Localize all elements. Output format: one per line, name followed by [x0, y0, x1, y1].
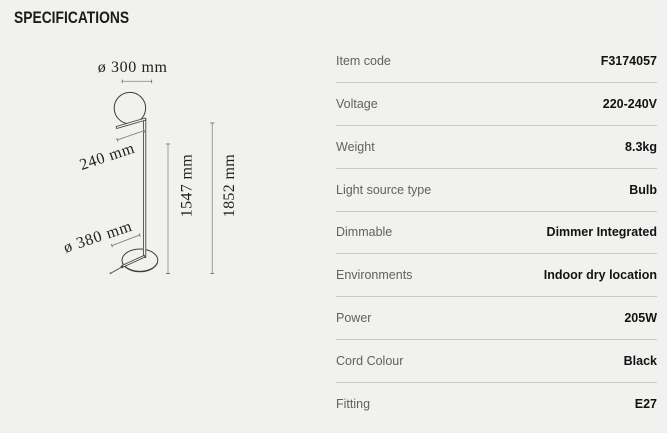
svg-text:1852 mm: 1852 mm [221, 154, 238, 218]
svg-text:240 mm: 240 mm [78, 140, 138, 174]
svg-text:ø 380 mm: ø 380 mm [61, 218, 134, 257]
svg-text:ø 300 mm: ø 300 mm [98, 59, 168, 76]
svg-text:1547 mm: 1547 mm [179, 154, 196, 218]
